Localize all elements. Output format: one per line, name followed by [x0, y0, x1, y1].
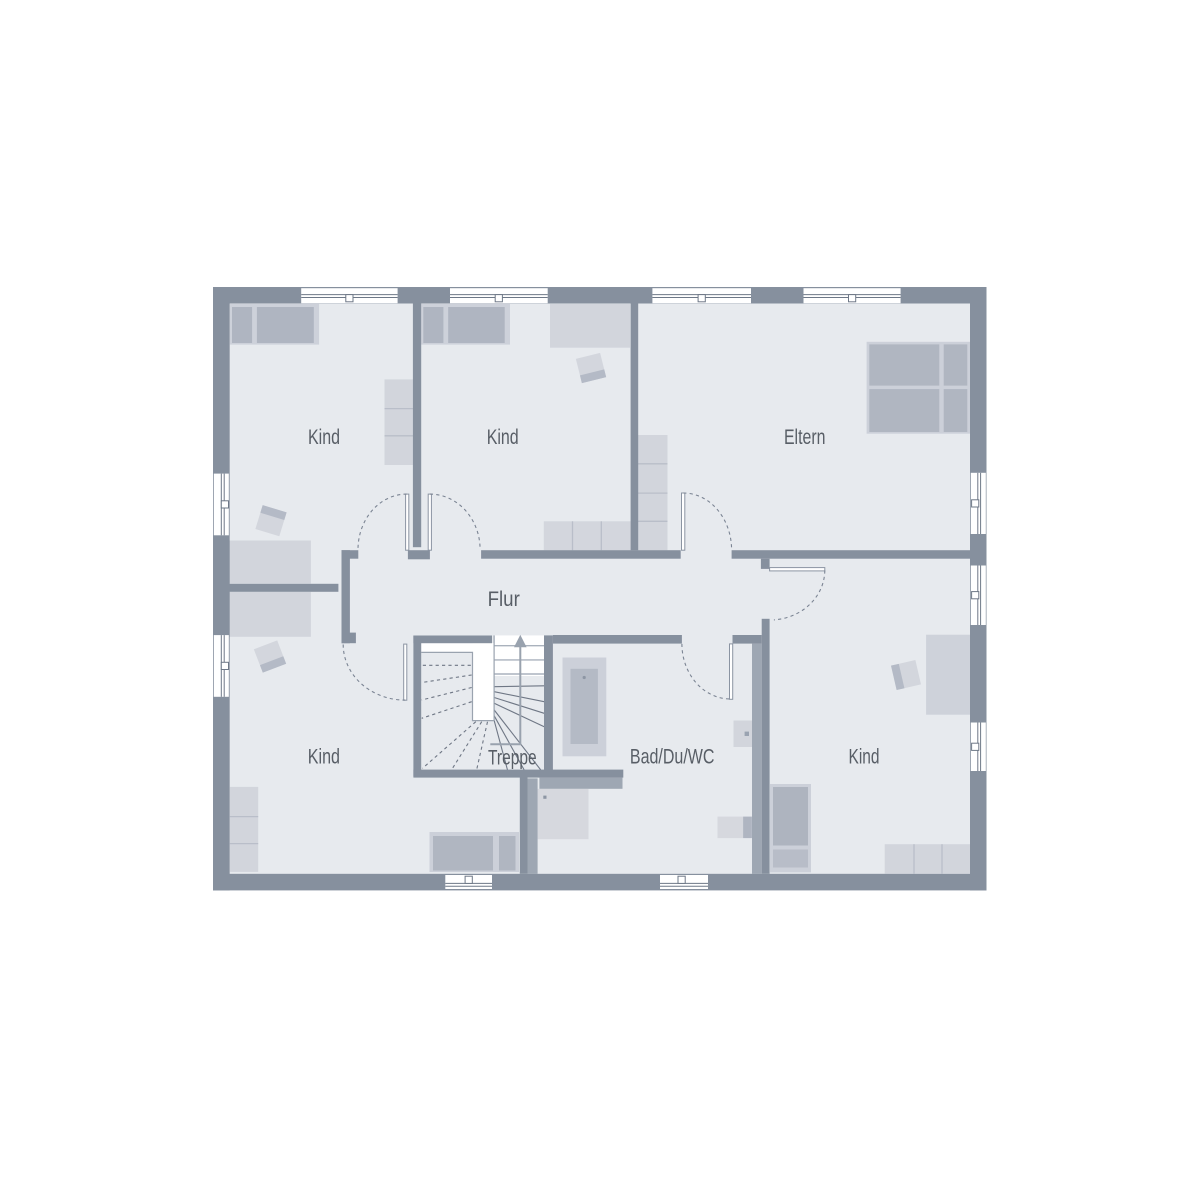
svg-text:Eltern: Eltern: [784, 426, 826, 449]
svg-text:Kind: Kind: [308, 745, 340, 768]
svg-text:Kind: Kind: [308, 426, 340, 449]
svg-text:Treppe: Treppe: [488, 746, 537, 769]
svg-text:Kind: Kind: [849, 745, 880, 768]
svg-text:Kind: Kind: [487, 426, 519, 449]
svg-text:Flur: Flur: [488, 588, 520, 611]
svg-text:Bad/Du/WC: Bad/Du/WC: [630, 746, 715, 769]
